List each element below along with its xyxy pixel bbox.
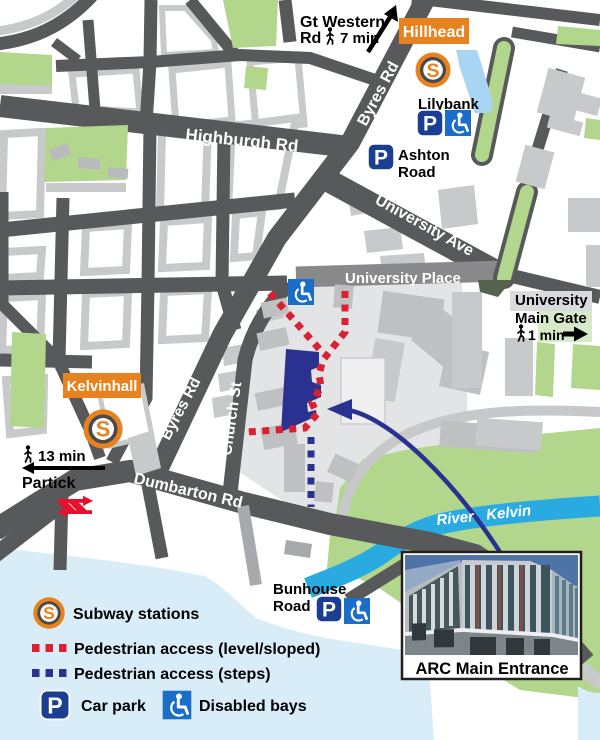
svg-text:Disabled bays: Disabled bays	[199, 698, 307, 715]
svg-text:Ashton: Ashton	[398, 147, 450, 164]
svg-text:Pedestrian access (level/slope: Pedestrian access (level/sloped)	[74, 641, 320, 658]
svg-text:Subway stations: Subway stations	[73, 606, 199, 623]
svg-text:Car park: Car park	[81, 698, 146, 715]
svg-text:Rd: Rd	[300, 30, 321, 47]
svg-text:13 min: 13 min	[38, 448, 86, 465]
svg-text:Road: Road	[273, 598, 311, 615]
svg-text:Hillhead: Hillhead	[403, 24, 465, 41]
svg-text:University Place: University Place	[345, 270, 461, 287]
svg-text:1 min: 1 min	[528, 327, 565, 343]
svg-text:Pedestrian access (steps): Pedestrian access (steps)	[74, 666, 271, 683]
svg-text:University: University	[515, 292, 588, 309]
svg-text:ARC Main Entrance: ARC Main Entrance	[415, 660, 568, 678]
svg-text:Kelvinhall: Kelvinhall	[67, 378, 138, 395]
svg-text:Main Gate: Main Gate	[515, 310, 587, 327]
svg-text:Gt Western: Gt Western	[300, 14, 385, 31]
svg-text:Partick: Partick	[22, 475, 75, 492]
svg-text:Road: Road	[398, 164, 436, 181]
